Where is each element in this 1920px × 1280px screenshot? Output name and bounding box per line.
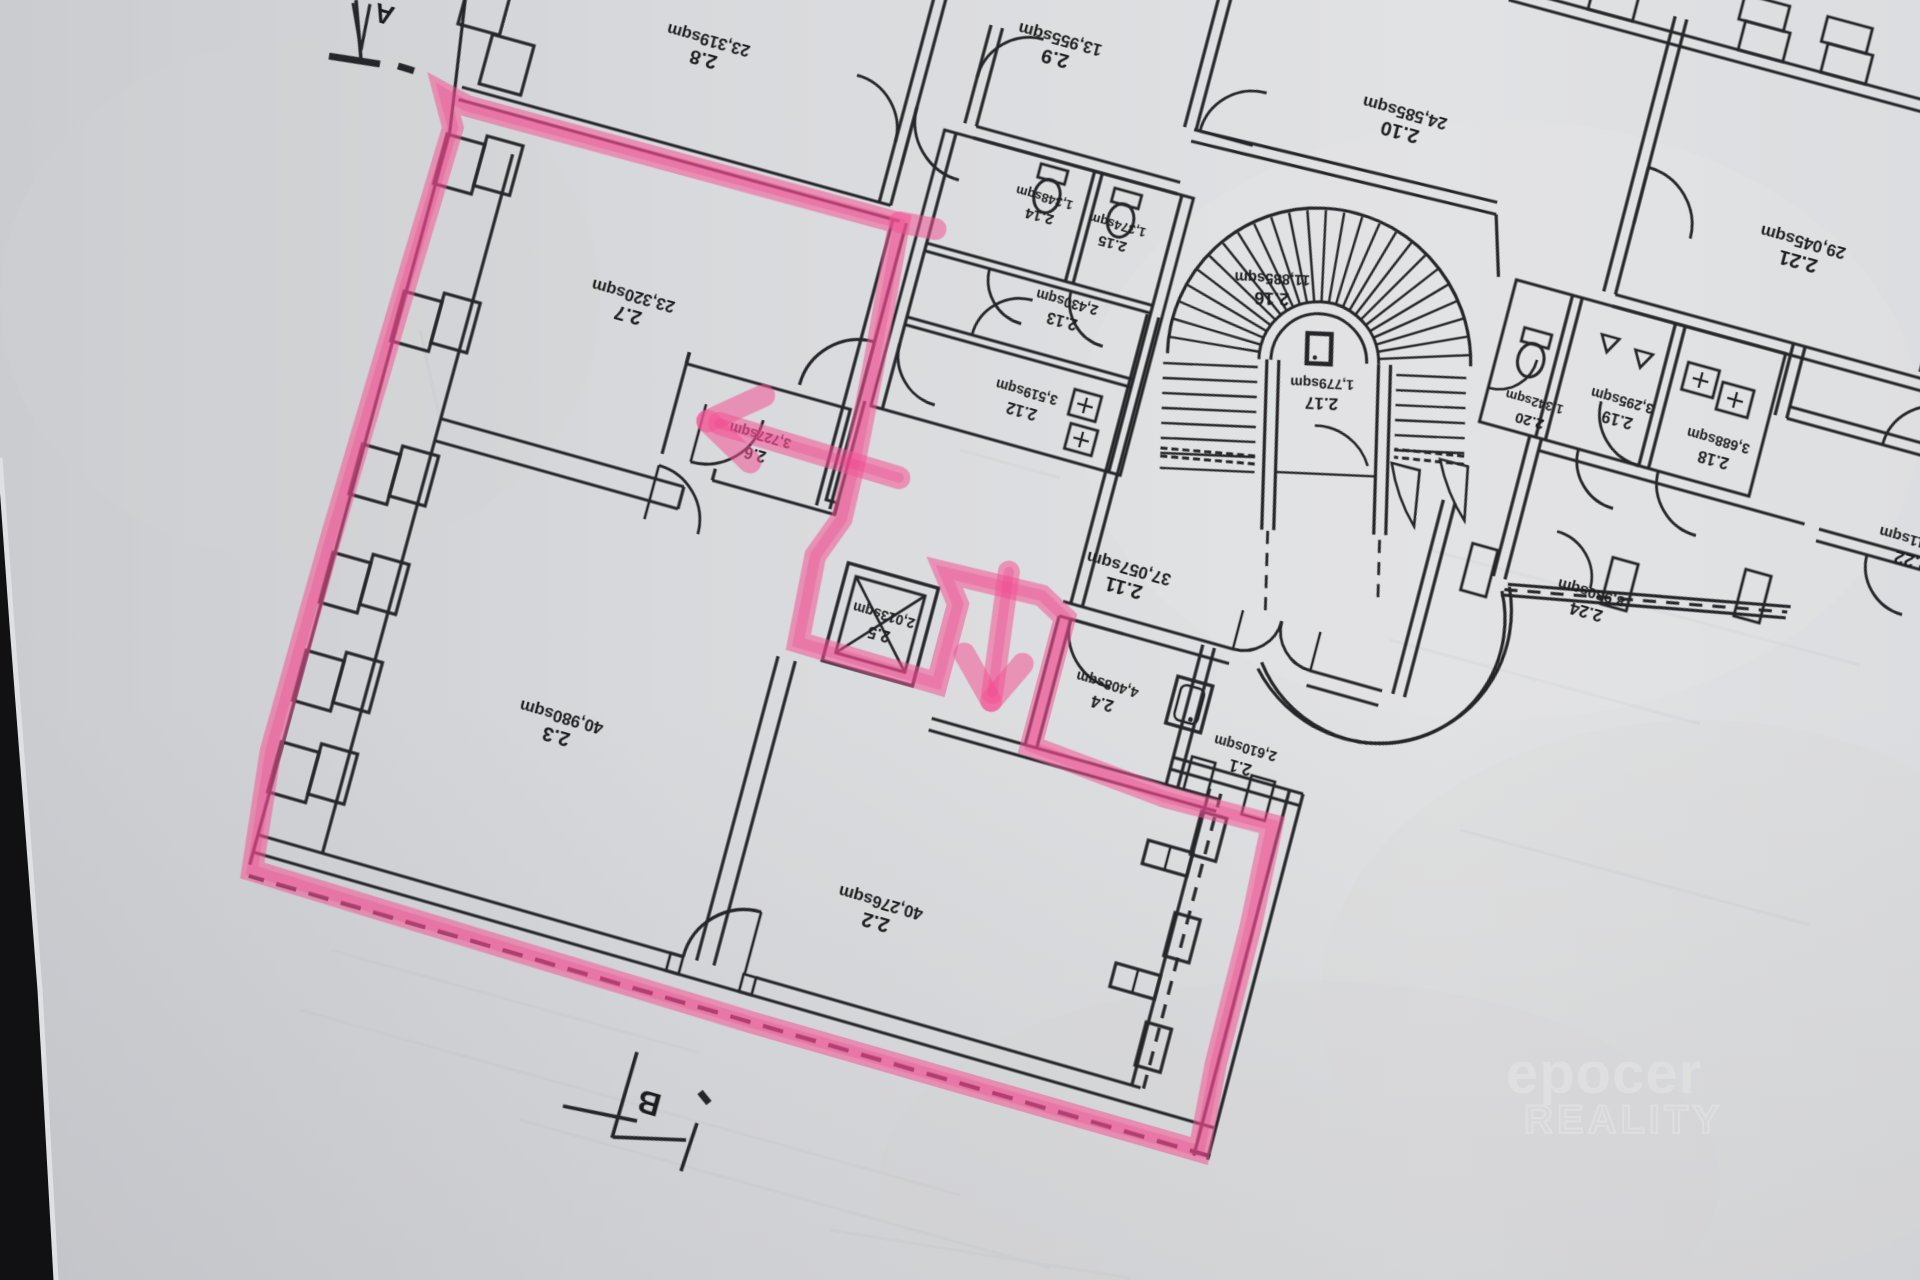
svg-text:2,013sqm: 2,013sqm bbox=[851, 598, 916, 630]
svg-text:2.17: 2.17 bbox=[1305, 393, 1339, 414]
svg-text:2.16: 2.16 bbox=[1254, 288, 1289, 309]
svg-text:B: B bbox=[633, 1082, 664, 1123]
svg-text:3,519sqm: 3,519sqm bbox=[994, 375, 1059, 407]
svg-text:4,408sqm: 4,408sqm bbox=[1075, 667, 1141, 700]
svg-text:2,610sqm: 2,610sqm bbox=[1213, 731, 1279, 764]
svg-text:11,885sqm: 11,885sqm bbox=[1234, 268, 1310, 288]
svg-text:1,348sqm: 1,348sqm bbox=[1014, 183, 1074, 213]
svg-text:A: A bbox=[371, 0, 398, 31]
svg-text:1,779sqm: 1,779sqm bbox=[1290, 374, 1354, 393]
svg-text:1,342sqm: 1,342sqm bbox=[1504, 387, 1565, 417]
svg-text:2.5: 2.5 bbox=[866, 622, 892, 645]
svg-text:2.4: 2.4 bbox=[1089, 691, 1115, 714]
svg-text:2.22: 2.22 bbox=[1892, 547, 1920, 576]
svg-text:3,688sqm: 3,688sqm bbox=[1685, 424, 1751, 456]
